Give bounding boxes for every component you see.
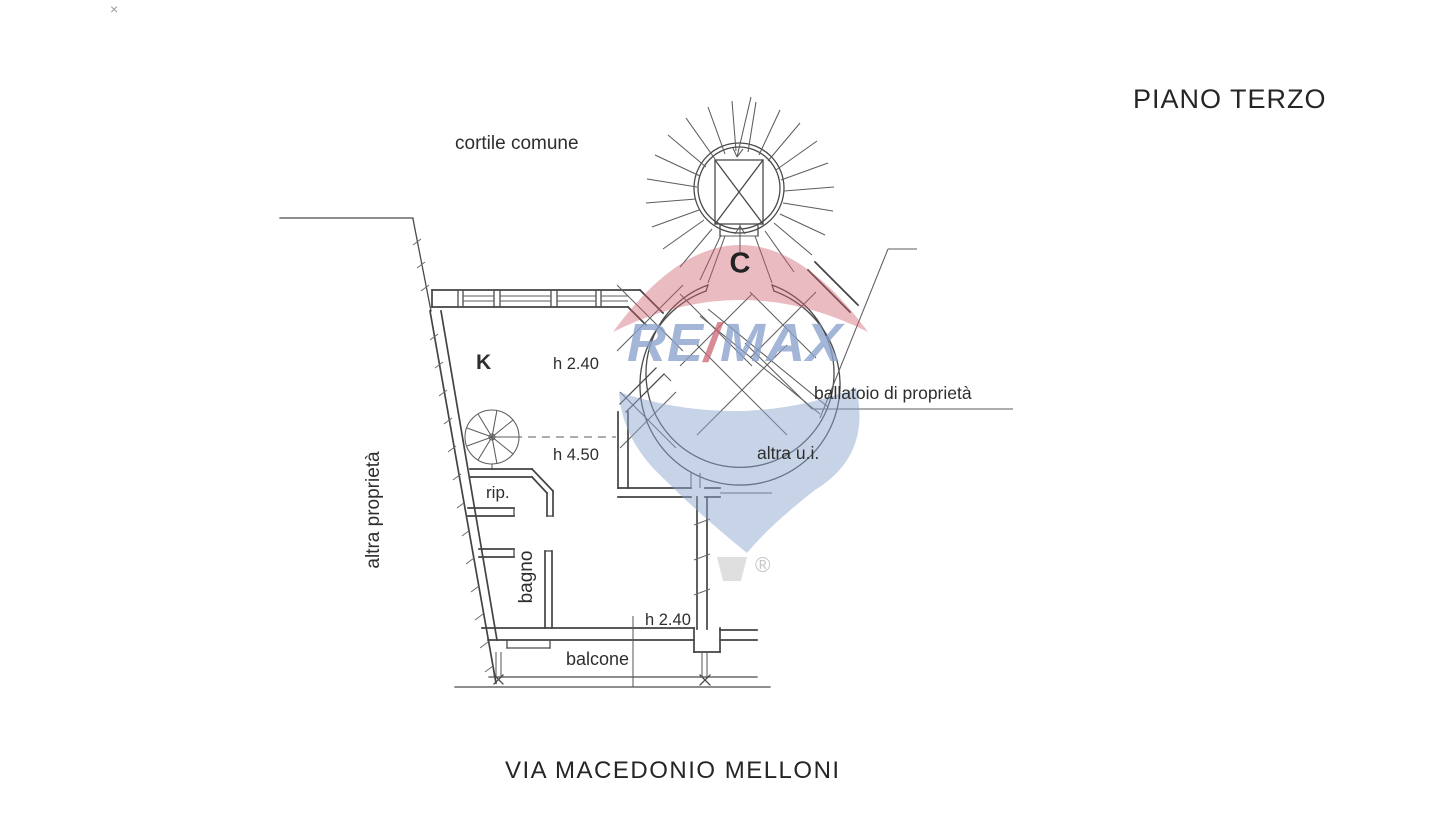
label-stairwell-c: C bbox=[730, 248, 751, 281]
balloon-basket bbox=[717, 557, 747, 581]
label-courtyard: cortile comune bbox=[455, 133, 579, 155]
watermark-re: RE bbox=[627, 313, 704, 373]
label-height-double: h 4.50 bbox=[553, 446, 599, 465]
label-kitchen: K bbox=[476, 351, 491, 375]
page-title: PIANO TERZO bbox=[1133, 84, 1327, 115]
label-height-upper: h 2.40 bbox=[553, 355, 599, 374]
street-name: VIA MACEDONIO MELLONI bbox=[505, 757, 841, 785]
label-other-property: altra proprietà bbox=[363, 451, 385, 568]
label-gallery: ballatoio di proprietà bbox=[814, 383, 972, 404]
balloon-bottom-blue bbox=[619, 388, 860, 553]
label-storage: rip. bbox=[486, 483, 510, 503]
label-height-lower: h 2.40 bbox=[645, 611, 691, 630]
watermark-max: MAX bbox=[720, 313, 843, 373]
stray-scan-mark: × bbox=[110, 1, 118, 17]
label-bathroom: bagno bbox=[516, 551, 538, 604]
watermark-slash: / bbox=[704, 313, 720, 373]
label-balcony: balcone bbox=[566, 649, 629, 670]
registered-trademark-symbol: ® bbox=[755, 554, 770, 578]
floor-plan-page: RE/MAX ® PIANO TERZO cortile comune C K … bbox=[0, 0, 1454, 832]
label-other-unit: altra u.i. bbox=[757, 443, 819, 464]
watermark-brand-text: RE/MAX bbox=[627, 312, 843, 374]
watermark-balloon bbox=[0, 0, 1454, 832]
